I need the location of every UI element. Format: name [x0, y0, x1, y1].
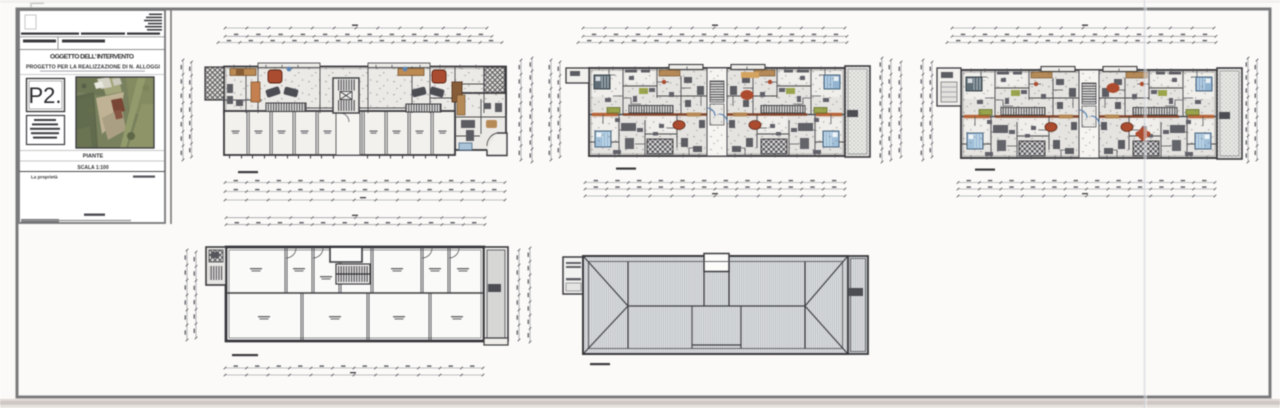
svg-text:PROGETTO PER LA REALIZZAZIONE: PROGETTO PER LA REALIZZAZIONE DI N. ALLO… [26, 65, 161, 71]
svg-text:OGGETTO DELL’ INTERVENTO: OGGETTO DELL’ INTERVENTO [50, 54, 134, 61]
svg-text:La proprietà: La proprietà [31, 175, 58, 180]
svg-text:P2.: P2. [28, 83, 61, 108]
svg-text:SCALA 1:100: SCALA 1:100 [77, 165, 108, 171]
svg-text:PIANTE: PIANTE [83, 154, 104, 160]
